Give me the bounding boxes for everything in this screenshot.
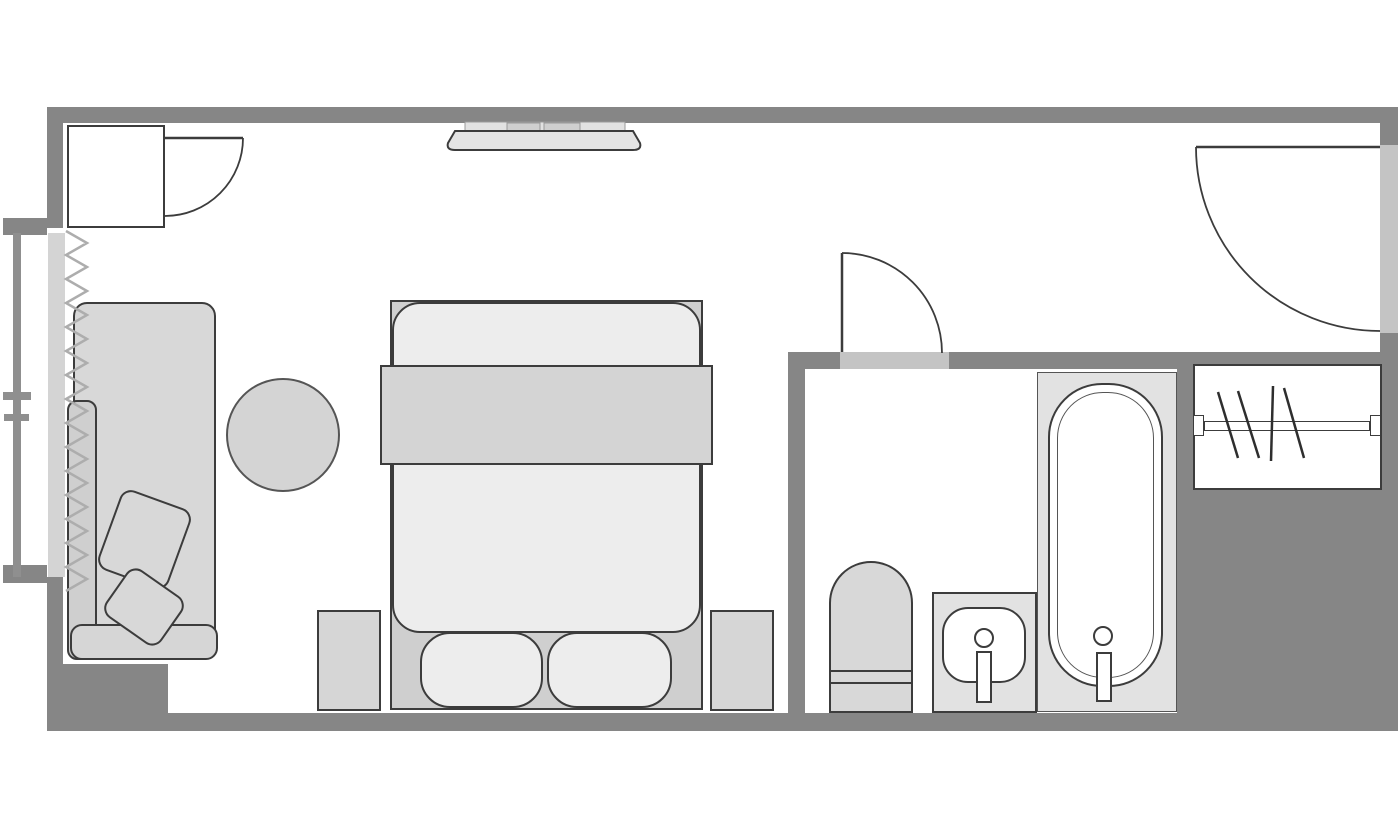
tv-body — [448, 131, 641, 150]
closet-rod-cap-left — [1193, 415, 1204, 436]
pillow-left — [420, 632, 543, 708]
wall-bottom — [47, 713, 1398, 731]
connecting-door-recess — [67, 125, 165, 228]
bathtub-drain — [1093, 626, 1113, 646]
bed-duvet — [380, 365, 713, 465]
closet-rod-cap-right — [1370, 415, 1381, 436]
nightstand-left — [317, 610, 381, 711]
bathroom-door-swing-arc — [842, 253, 942, 353]
pillar-bottom-left — [47, 664, 168, 713]
toilet — [830, 562, 912, 712]
entry-door-swing-arc — [1196, 147, 1380, 331]
closet-wall-left — [1177, 352, 1193, 713]
floor-plan — [0, 0, 1400, 840]
wall-left-upper — [47, 107, 63, 228]
balcony-wall-stub-top — [3, 218, 47, 235]
entry-door-opening — [1380, 145, 1398, 333]
tv-mount-bar — [465, 122, 625, 131]
closet-rod — [1204, 421, 1370, 431]
balcony-wall-stub-bottom — [3, 565, 47, 583]
bathtub-faucet — [1096, 652, 1112, 702]
pillow-right — [547, 632, 672, 708]
connecting-door-swing-arc — [165, 138, 243, 216]
railing-tick-upper — [3, 392, 31, 400]
bathroom-wall-left — [788, 352, 805, 713]
bathroom-door-opening — [840, 352, 949, 369]
utility-block-bottom-right — [1193, 490, 1398, 713]
sofa-backrest — [67, 400, 97, 660]
tv-mount-tab-left — [507, 123, 540, 132]
bed-mattress — [392, 302, 701, 633]
round-side-table — [226, 378, 340, 492]
tv-mount-tab-right — [544, 123, 580, 132]
window-glass — [48, 233, 65, 577]
sink-faucet — [976, 651, 992, 703]
balcony-railing — [13, 233, 21, 577]
nightstand-right — [710, 610, 774, 711]
railing-tick-lower — [4, 414, 29, 421]
sink-drain — [974, 628, 994, 648]
wall-top — [47, 107, 1398, 123]
